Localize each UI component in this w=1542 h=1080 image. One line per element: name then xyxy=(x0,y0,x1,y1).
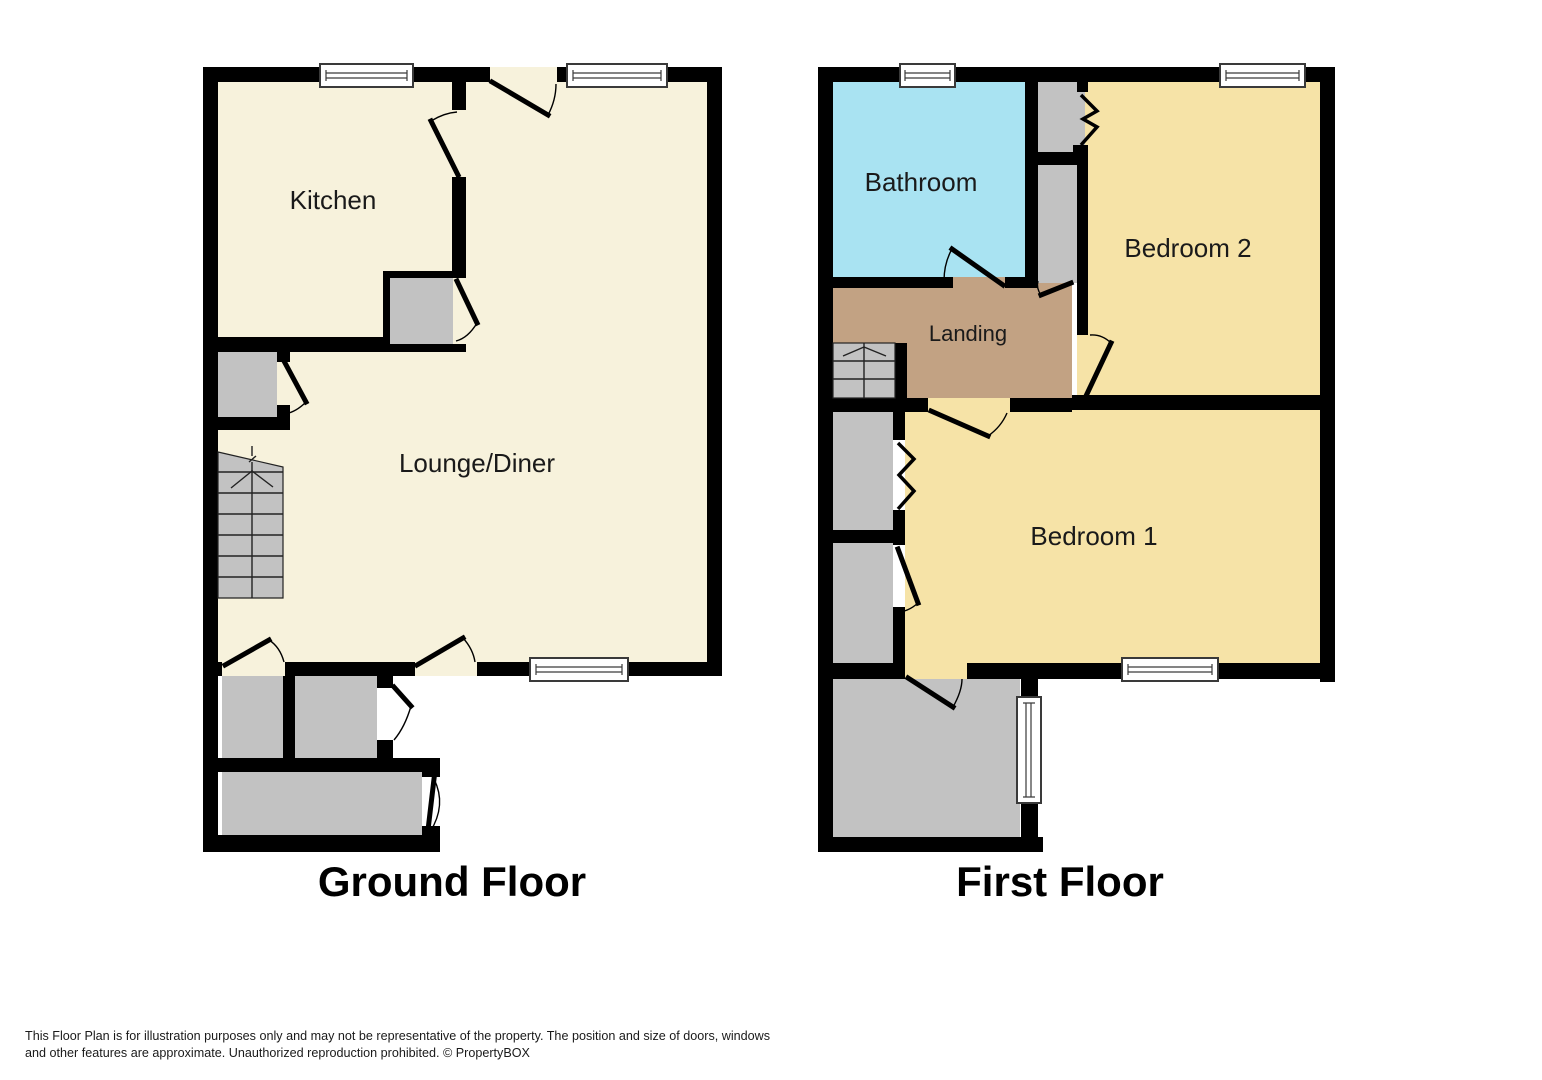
window-frame xyxy=(1220,64,1305,87)
bathroom-label: Bathroom xyxy=(865,167,978,197)
wall xyxy=(895,343,907,398)
store-room-area xyxy=(833,677,1020,837)
wall xyxy=(377,676,393,688)
ground-floor-stairs xyxy=(218,446,283,598)
wall xyxy=(893,412,905,440)
wall xyxy=(1021,672,1038,697)
wall xyxy=(203,835,440,852)
window xyxy=(900,64,955,87)
window-frame xyxy=(530,658,628,681)
wall xyxy=(1005,277,1038,288)
porch-area xyxy=(222,772,422,835)
lounge-diner-label: Lounge/Diner xyxy=(399,448,555,478)
wall xyxy=(218,337,383,352)
bedroom2-label: Bedroom 2 xyxy=(1124,233,1251,263)
wardrobe-area-2 xyxy=(833,543,893,663)
wall xyxy=(1077,82,1088,92)
wall xyxy=(1072,395,1322,410)
ground-floor-plan: Kitchen Lounge/Diner Ground Floor xyxy=(203,64,722,905)
wall xyxy=(283,676,295,758)
store-door xyxy=(394,687,411,740)
wall xyxy=(203,67,218,852)
closet-area-top xyxy=(1038,82,1085,152)
landing-label: Landing xyxy=(929,321,1007,346)
wall xyxy=(818,277,953,288)
first-floor-stairs xyxy=(833,343,895,398)
window-frame xyxy=(320,64,413,87)
window xyxy=(320,64,413,87)
window xyxy=(1017,697,1041,803)
wall xyxy=(818,837,1043,852)
ground-floor-caption: Ground Floor xyxy=(318,858,586,905)
door-opening xyxy=(905,663,967,679)
window xyxy=(567,64,667,87)
wall xyxy=(818,663,1335,679)
door-opening xyxy=(928,398,1010,412)
window-frame xyxy=(1017,697,1041,803)
wall xyxy=(203,417,290,430)
disclaimer-line-1: This Floor Plan is for illustration purp… xyxy=(25,1028,770,1045)
wall xyxy=(1077,163,1088,335)
staircase xyxy=(218,452,283,598)
airing-cupboard-area xyxy=(1038,165,1078,283)
porch-door xyxy=(428,779,440,832)
wall xyxy=(203,758,440,772)
window-frame xyxy=(567,64,667,87)
floorplan-page: Kitchen Lounge/Diner Ground Floor xyxy=(0,0,1542,1080)
wall xyxy=(893,607,905,663)
first-floor-plan: Bathroom Bedroom 2 Landing Bedroom 1 Fir… xyxy=(818,64,1335,905)
door-opening xyxy=(415,662,477,676)
floorplan-canvas: Kitchen Lounge/Diner Ground Floor xyxy=(0,0,1542,1080)
first-floor-caption: First Floor xyxy=(956,858,1164,905)
wall xyxy=(707,67,722,676)
boiler-cupboard-area xyxy=(390,278,453,344)
wall xyxy=(452,177,466,277)
door-leaf xyxy=(394,687,411,706)
wardrobe-area-1 xyxy=(833,412,893,530)
window-frame xyxy=(1122,658,1218,681)
window-frame xyxy=(900,64,955,87)
door-opening xyxy=(490,67,557,82)
wall xyxy=(377,740,393,758)
understairs-cupboard-area xyxy=(218,352,277,417)
wall xyxy=(818,67,833,852)
entrance-lobby-area xyxy=(222,676,283,758)
door-swing-arc xyxy=(394,706,411,740)
window xyxy=(1220,64,1305,87)
wall xyxy=(452,82,466,110)
store-area xyxy=(295,676,377,758)
wall xyxy=(893,510,905,545)
bedroom1-label: Bedroom 1 xyxy=(1030,521,1157,551)
wall xyxy=(422,758,440,777)
disclaimer-line-2: and other features are approximate. Unau… xyxy=(25,1045,770,1062)
wall xyxy=(1021,803,1038,852)
wall xyxy=(1073,145,1088,163)
window xyxy=(530,658,628,681)
window xyxy=(1122,658,1218,681)
door-leaf xyxy=(428,779,434,830)
kitchen-label: Kitchen xyxy=(290,185,377,215)
wall xyxy=(1320,67,1335,682)
disclaimer: This Floor Plan is for illustration purp… xyxy=(25,1028,770,1062)
wall xyxy=(1025,82,1038,288)
